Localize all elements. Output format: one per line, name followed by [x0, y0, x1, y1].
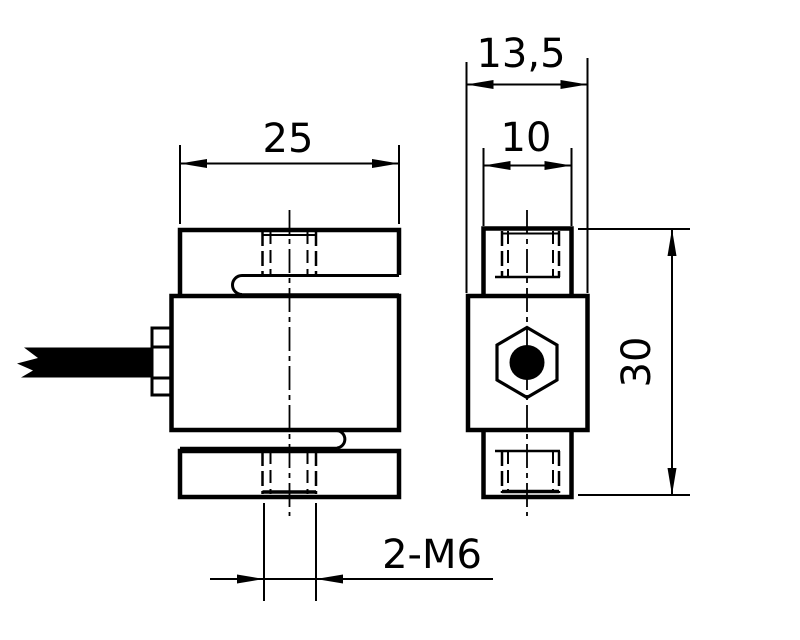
dim-front-width: 25	[180, 116, 399, 224]
dim-label-25: 25	[263, 116, 314, 162]
dim-thread-callout: 2-M6	[210, 503, 493, 601]
cable	[17, 348, 153, 378]
arrowhead-left	[180, 159, 207, 168]
arrowhead-down	[668, 468, 677, 495]
dim-height: 30	[578, 229, 690, 495]
lower-slot-round-end	[337, 431, 345, 449]
dim-label-13-5: 13,5	[476, 31, 565, 77]
cable-gland	[152, 328, 172, 395]
side-view	[468, 210, 588, 516]
dim-label-2-m6: 2-M6	[382, 532, 482, 578]
arrowhead-left	[316, 575, 343, 584]
load-cell-dimension-drawing: 25 13,5 10 30	[0, 0, 800, 640]
dim-label-10: 10	[501, 115, 552, 161]
arrowhead-left	[467, 80, 494, 89]
front-view	[17, 210, 399, 516]
dim-label-30: 30	[614, 337, 660, 388]
arrowhead-up	[668, 229, 677, 256]
dim-boss-width: 10	[484, 115, 572, 226]
arrowhead-right	[372, 159, 399, 168]
arrowhead-left	[484, 161, 511, 170]
arrowhead-right	[237, 575, 264, 584]
technical-drawing-canvas: 25 13,5 10 30	[0, 0, 800, 640]
arrowhead-right	[561, 80, 588, 89]
front-body-outline	[172, 296, 400, 430]
upper-slot-round-end	[233, 276, 243, 295]
arrowhead-right	[545, 161, 572, 170]
